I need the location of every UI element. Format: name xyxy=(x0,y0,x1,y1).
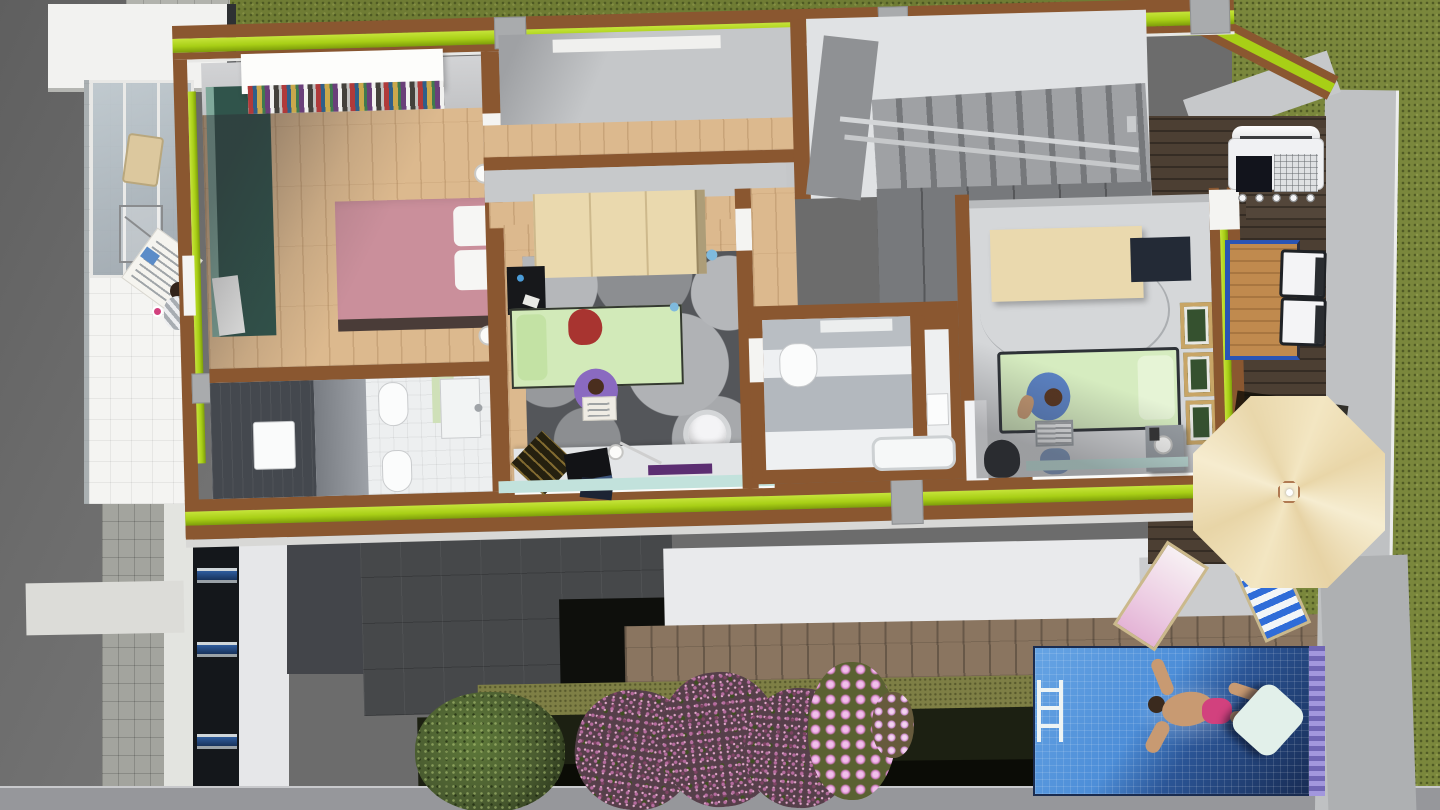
child-book xyxy=(582,396,617,421)
window-row xyxy=(193,734,240,750)
bush-texture xyxy=(415,692,565,810)
chair-back xyxy=(1314,305,1324,343)
loft-canopy xyxy=(533,190,707,279)
bathtub xyxy=(871,435,956,471)
facade-windows-strip xyxy=(193,534,240,810)
pillar xyxy=(890,476,923,525)
chair-back xyxy=(1314,257,1324,295)
bathroom-cabinet xyxy=(820,319,892,333)
red-blanket xyxy=(568,308,603,345)
bbq-grate xyxy=(1274,154,1318,192)
pillar-corner xyxy=(1190,0,1231,34)
washbasin xyxy=(253,421,296,470)
terrace-chair xyxy=(1279,249,1327,299)
window-row xyxy=(193,642,240,658)
bidet xyxy=(378,382,409,427)
parasol-pole xyxy=(1286,489,1293,496)
corridor-wood-floor xyxy=(751,187,798,314)
white-wall-band xyxy=(239,534,289,810)
lounger-canvas xyxy=(1113,540,1209,651)
pool-ladder xyxy=(1037,680,1063,742)
pink-mug xyxy=(152,306,163,317)
room-shadow xyxy=(202,107,509,369)
child-reading xyxy=(573,368,621,435)
kids-pillow xyxy=(516,314,548,381)
room-shadow xyxy=(973,328,1217,478)
terrace-chair xyxy=(1279,297,1327,347)
tile-shadow xyxy=(314,379,369,496)
toilet xyxy=(382,450,413,493)
pool-tile-edge xyxy=(1309,646,1325,796)
railing-post xyxy=(1127,116,1136,132)
balcony-door xyxy=(182,255,196,315)
house-upper-floor xyxy=(172,0,1248,548)
dark-closet-corner xyxy=(1130,237,1191,283)
door-gap xyxy=(735,208,752,250)
lounger-pink xyxy=(1112,544,1232,654)
tan-wardrobe-top xyxy=(990,226,1144,302)
cafe-chair xyxy=(122,133,165,188)
bbq-grill xyxy=(1222,124,1330,208)
bbq-window xyxy=(1236,156,1272,192)
green-bush xyxy=(415,692,565,810)
sidewalk-tiles xyxy=(102,488,166,810)
pink-daisies-small xyxy=(872,692,914,758)
toilet xyxy=(779,343,818,388)
sink xyxy=(926,393,949,426)
purple-mat xyxy=(648,464,712,476)
window-row xyxy=(193,568,240,584)
bbq-handle xyxy=(1240,136,1312,139)
bbq-knobs xyxy=(1234,192,1318,204)
boundary-wall-east-lower xyxy=(1320,555,1417,810)
swimmer-trunks xyxy=(1202,698,1232,724)
door-gap xyxy=(749,338,764,382)
floor-plan-render xyxy=(0,0,1440,810)
walkway xyxy=(26,581,185,636)
